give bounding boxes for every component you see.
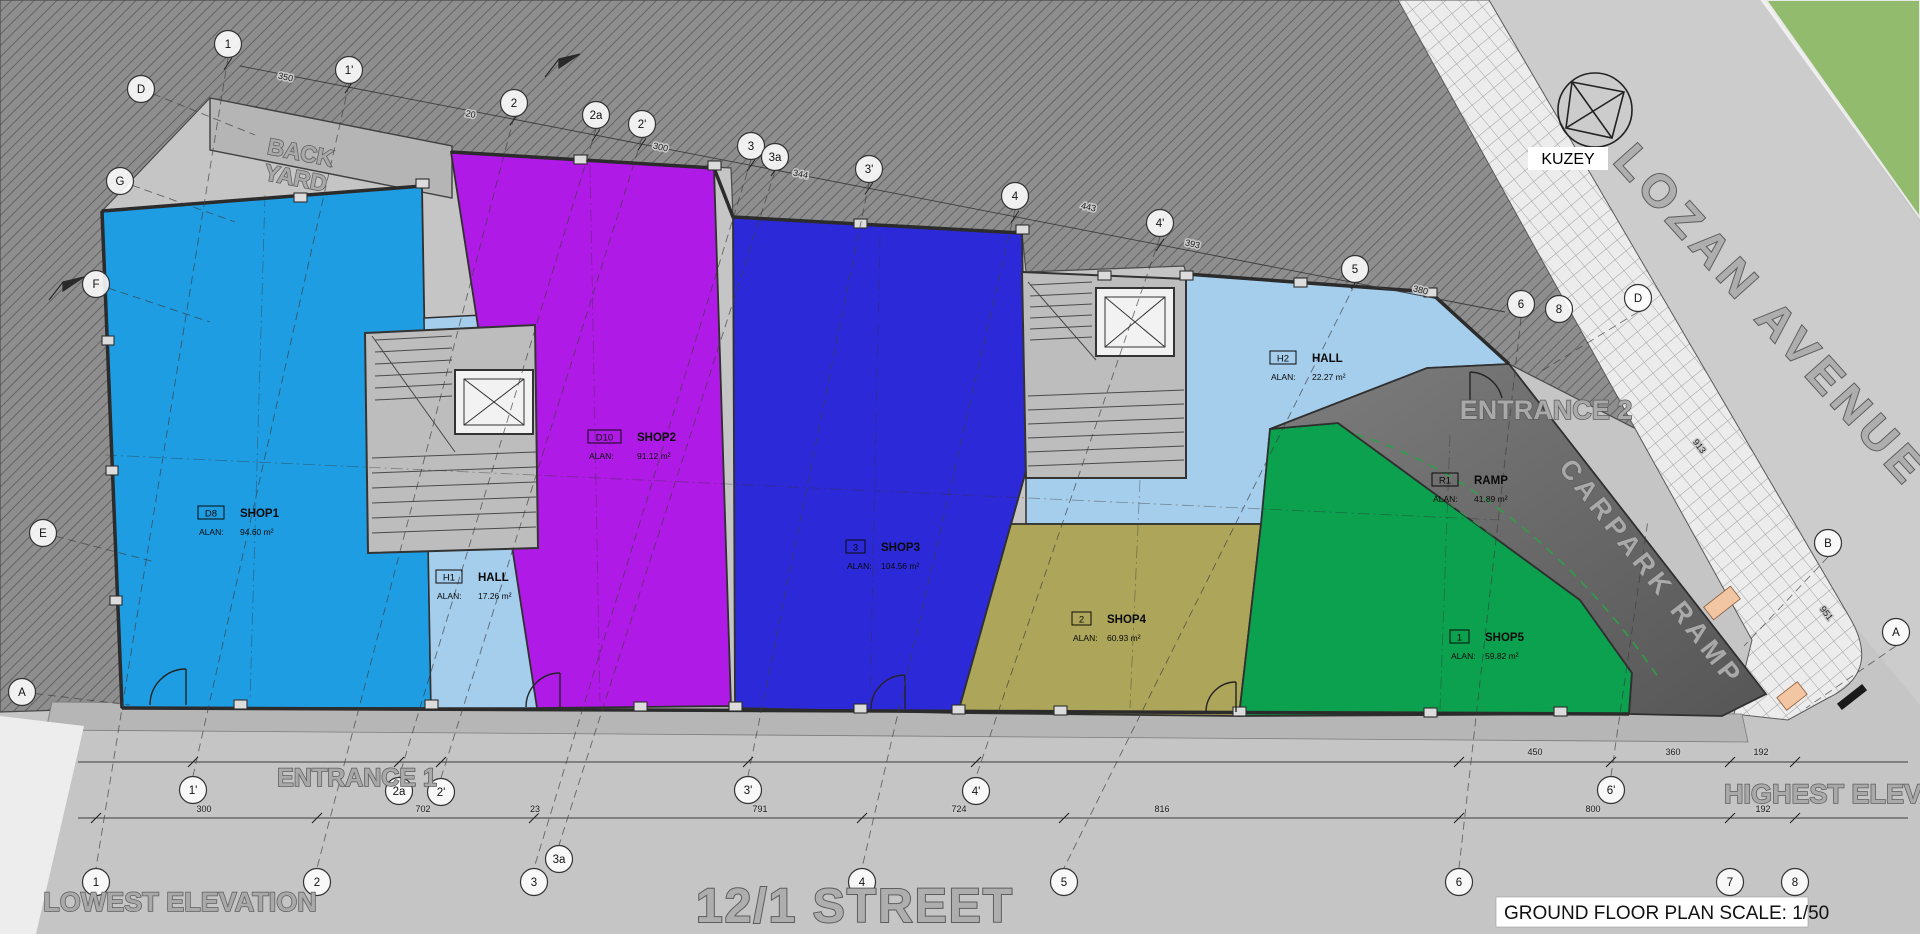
svg-text:ALAN:: ALAN: — [847, 561, 872, 571]
dimension-label: 23 — [530, 804, 540, 814]
svg-text:2': 2' — [437, 787, 446, 799]
svg-text:8: 8 — [1556, 304, 1562, 316]
grid-bubble-6: 6 — [1446, 869, 1473, 896]
svg-text:ALAN:: ALAN: — [199, 527, 224, 537]
svg-text:8: 8 — [1792, 877, 1798, 889]
svg-text:D: D — [137, 84, 145, 96]
grid-bubble-F: F — [83, 271, 110, 298]
title-block: GROUND FLOOR PLAN SCALE: 1/50 — [1496, 897, 1829, 927]
dimension-label: 702 — [415, 804, 430, 814]
svg-text:ALAN:: ALAN: — [1433, 494, 1458, 504]
elevator-2 — [1096, 288, 1174, 356]
grid-bubble-3: 3 — [521, 869, 548, 896]
svg-text:60.93 m²: 60.93 m² — [1107, 633, 1141, 643]
dimension-label: 450 — [1527, 747, 1542, 757]
svg-text:2a: 2a — [590, 110, 603, 122]
svg-text:6': 6' — [1607, 785, 1616, 797]
dimension-label: 724 — [951, 804, 966, 814]
grid-bubble-4': 4' — [963, 778, 990, 805]
svg-text:R1: R1 — [1439, 476, 1451, 487]
grid-bubble-E: E — [30, 520, 57, 547]
north-label-text: KUZEY — [1541, 151, 1595, 168]
svg-text:3a: 3a — [769, 152, 782, 164]
entrance1-label: ENTRANCE 1 — [277, 764, 437, 792]
dimension-label: 192 — [1753, 747, 1768, 757]
dimension-label: 816 — [1154, 804, 1169, 814]
svg-text:3': 3' — [744, 785, 753, 797]
svg-text:ALAN:: ALAN: — [589, 451, 614, 461]
grid-bubble-7: 7 — [1717, 869, 1744, 896]
svg-text:94.60 m²: 94.60 m² — [240, 527, 274, 537]
svg-text:4: 4 — [1012, 191, 1019, 203]
grid-bubble-6: 6 — [1508, 291, 1535, 318]
north-label: KUZEY — [1528, 147, 1608, 170]
svg-text:4': 4' — [1156, 218, 1165, 230]
grid-bubble-4: 4 — [1002, 183, 1029, 210]
grid-bubble-3': 3' — [856, 156, 883, 183]
svg-text:3: 3 — [748, 141, 754, 153]
svg-text:D10: D10 — [596, 433, 613, 444]
grid-bubble-3a: 3a — [762, 144, 789, 171]
svg-text:ALAN:: ALAN: — [1271, 372, 1296, 382]
grid-bubble-1: 1 — [215, 31, 242, 58]
svg-text:A: A — [1892, 627, 1900, 639]
svg-text:B: B — [1824, 538, 1832, 550]
svg-text:6: 6 — [1456, 877, 1462, 889]
grid-bubble-5: 5 — [1051, 869, 1078, 896]
svg-text:G: G — [116, 176, 125, 188]
floor-plan-canvas: 4503601923007022379172481680019235020300… — [0, 0, 1920, 934]
dimension-label: 800 — [1585, 804, 1600, 814]
grid-bubble-1': 1' — [336, 57, 363, 84]
svg-text:RAMP: RAMP — [1474, 475, 1508, 487]
grid-bubble-4': 4' — [1147, 210, 1174, 237]
svg-text:104.56 m²: 104.56 m² — [881, 561, 919, 571]
svg-text:17.26 m²: 17.26 m² — [478, 591, 512, 601]
svg-text:HALL: HALL — [1312, 353, 1343, 365]
svg-text:F: F — [92, 279, 99, 291]
grid-bubble-6': 6' — [1598, 777, 1625, 804]
grid-bubble-1': 1' — [180, 777, 207, 804]
elevator-1 — [455, 370, 533, 434]
svg-text:ALAN:: ALAN: — [437, 591, 462, 601]
grid-bubble-B: B — [1815, 530, 1842, 557]
dimension-label: 791 — [752, 804, 767, 814]
svg-text:4': 4' — [972, 786, 981, 798]
svg-text:1: 1 — [1457, 633, 1462, 644]
svg-text:41.89 m²: 41.89 m² — [1474, 494, 1508, 504]
svg-text:3a: 3a — [553, 854, 566, 866]
svg-text:H1: H1 — [443, 573, 455, 584]
svg-text:7: 7 — [1727, 877, 1733, 889]
svg-text:3: 3 — [853, 543, 858, 554]
grid-bubble-A: A — [1883, 619, 1910, 646]
grid-bubble-2': 2' — [629, 111, 656, 138]
grid-bubble-A: A — [9, 679, 36, 706]
svg-text:3: 3 — [531, 877, 537, 889]
stairwell-1 — [365, 325, 538, 553]
svg-text:SHOP1: SHOP1 — [240, 508, 280, 520]
dimension-label: 300 — [196, 804, 211, 814]
svg-text:2: 2 — [1079, 615, 1084, 626]
svg-text:HALL: HALL — [478, 572, 509, 584]
svg-text:D8: D8 — [205, 509, 217, 520]
svg-text:SHOP2: SHOP2 — [637, 432, 676, 444]
highest-elevation-label: HIGHEST ELEVATION — [1724, 779, 1920, 809]
dimension-label: 20 — [465, 108, 477, 120]
stairwell-2 — [1022, 272, 1186, 478]
grid-bubble-2: 2 — [501, 90, 528, 117]
dimension-label: 360 — [1665, 747, 1680, 757]
grid-bubble-D: D — [1625, 285, 1652, 312]
grid-bubble-D: D — [128, 76, 155, 103]
svg-text:1': 1' — [345, 65, 354, 77]
svg-text:2: 2 — [511, 98, 517, 110]
svg-text:1': 1' — [189, 785, 198, 797]
grid-bubble-8: 8 — [1782, 869, 1809, 896]
svg-text:E: E — [39, 528, 47, 540]
street-label-bottom: 12/1 STREET — [696, 880, 1014, 933]
svg-text:91.12 m²: 91.12 m² — [637, 451, 671, 461]
grid-bubble-3a: 3a — [546, 846, 573, 873]
grid-bubble-2a: 2a — [583, 102, 610, 129]
grid-bubble-5: 5 — [1342, 256, 1369, 283]
svg-text:A: A — [18, 687, 26, 699]
svg-text:6: 6 — [1518, 299, 1524, 311]
svg-text:ALAN:: ALAN: — [1073, 633, 1098, 643]
svg-text:22.27 m²: 22.27 m² — [1312, 372, 1346, 382]
grid-bubble-3': 3' — [735, 777, 762, 804]
svg-text:1: 1 — [225, 39, 231, 51]
grid-bubble-G: G — [107, 168, 134, 195]
entrance2-label: ENTRANCE 2 — [1460, 395, 1633, 425]
svg-text:SHOP4: SHOP4 — [1107, 614, 1147, 626]
svg-text:ALAN:: ALAN: — [1451, 651, 1476, 661]
svg-text:2': 2' — [638, 119, 647, 131]
svg-text:59.82 m²: 59.82 m² — [1485, 651, 1519, 661]
svg-text:SHOP3: SHOP3 — [881, 542, 920, 554]
title-text: GROUND FLOOR PLAN SCALE: 1/50 — [1504, 903, 1829, 924]
grid-bubble-3: 3 — [738, 133, 765, 160]
svg-text:H2: H2 — [1277, 354, 1289, 365]
svg-text:SHOP5: SHOP5 — [1485, 632, 1525, 644]
svg-text:5: 5 — [1061, 877, 1067, 889]
svg-text:3': 3' — [865, 164, 874, 176]
svg-text:5: 5 — [1352, 264, 1358, 276]
grid-bubble-8: 8 — [1546, 296, 1573, 323]
svg-text:D: D — [1634, 293, 1642, 305]
lowest-elevation-label: LOWEST ELEVATION — [43, 887, 317, 917]
